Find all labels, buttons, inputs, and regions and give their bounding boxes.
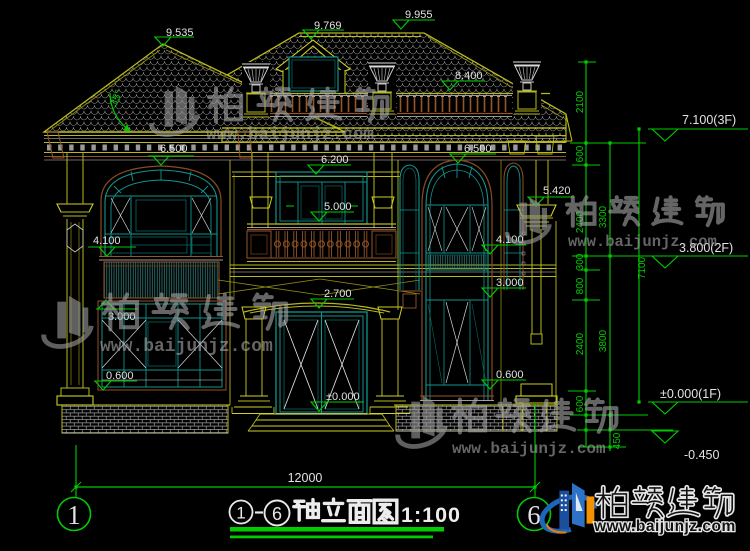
svg-text:300: 300: [575, 253, 586, 270]
svg-text:3.000: 3.000: [496, 277, 524, 289]
svg-text:www.baijunjz.com: www.baijunjz.com: [568, 233, 717, 251]
svg-text:5.420: 5.420: [543, 185, 571, 197]
svg-text:2400: 2400: [575, 332, 586, 355]
svg-text:800: 800: [575, 277, 586, 294]
svg-text:±0.000: ±0.000: [326, 391, 360, 403]
svg-text:5.000: 5.000: [324, 201, 352, 213]
svg-text:±0.000(1F): ±0.000(1F): [660, 387, 721, 401]
svg-text:8.400: 8.400: [455, 70, 483, 82]
svg-text:600: 600: [575, 145, 586, 162]
svg-text:6: 6: [272, 504, 282, 524]
svg-text:3300: 3300: [598, 205, 609, 228]
svg-text:7.100(3F): 7.100(3F): [682, 113, 736, 127]
svg-text:3800: 3800: [598, 329, 609, 352]
svg-text:www.baijunjz.com: www.baijunjz.com: [593, 518, 736, 535]
svg-text:6.200: 6.200: [321, 154, 349, 166]
svg-text:6: 6: [527, 500, 541, 530]
svg-text:450: 450: [612, 432, 623, 449]
svg-text:6.500: 6.500: [160, 143, 188, 155]
svg-text:6.500: 6.500: [464, 143, 492, 155]
svg-text:1:100: 1:100: [401, 503, 461, 527]
svg-text:7100: 7100: [637, 256, 648, 279]
svg-text:1: 1: [67, 500, 81, 530]
svg-text:www.baijunjz.com: www.baijunjz.com: [100, 337, 273, 357]
svg-text:12000: 12000: [288, 471, 323, 485]
svg-text:1: 1: [236, 504, 245, 523]
svg-text:0.600: 0.600: [496, 369, 524, 381]
svg-text:www.baijunjz.com: www.baijunjz.com: [452, 440, 606, 458]
svg-text:2100: 2100: [575, 90, 586, 113]
svg-text:-0.450: -0.450: [684, 448, 719, 462]
svg-text:0.600: 0.600: [106, 370, 134, 382]
svg-text:4.100: 4.100: [93, 235, 121, 247]
svg-text:www.baijunjz.com: www.baijunjz.com: [206, 125, 374, 145]
svg-text:9.955: 9.955: [405, 9, 433, 21]
svg-text:2.700: 2.700: [324, 288, 352, 300]
